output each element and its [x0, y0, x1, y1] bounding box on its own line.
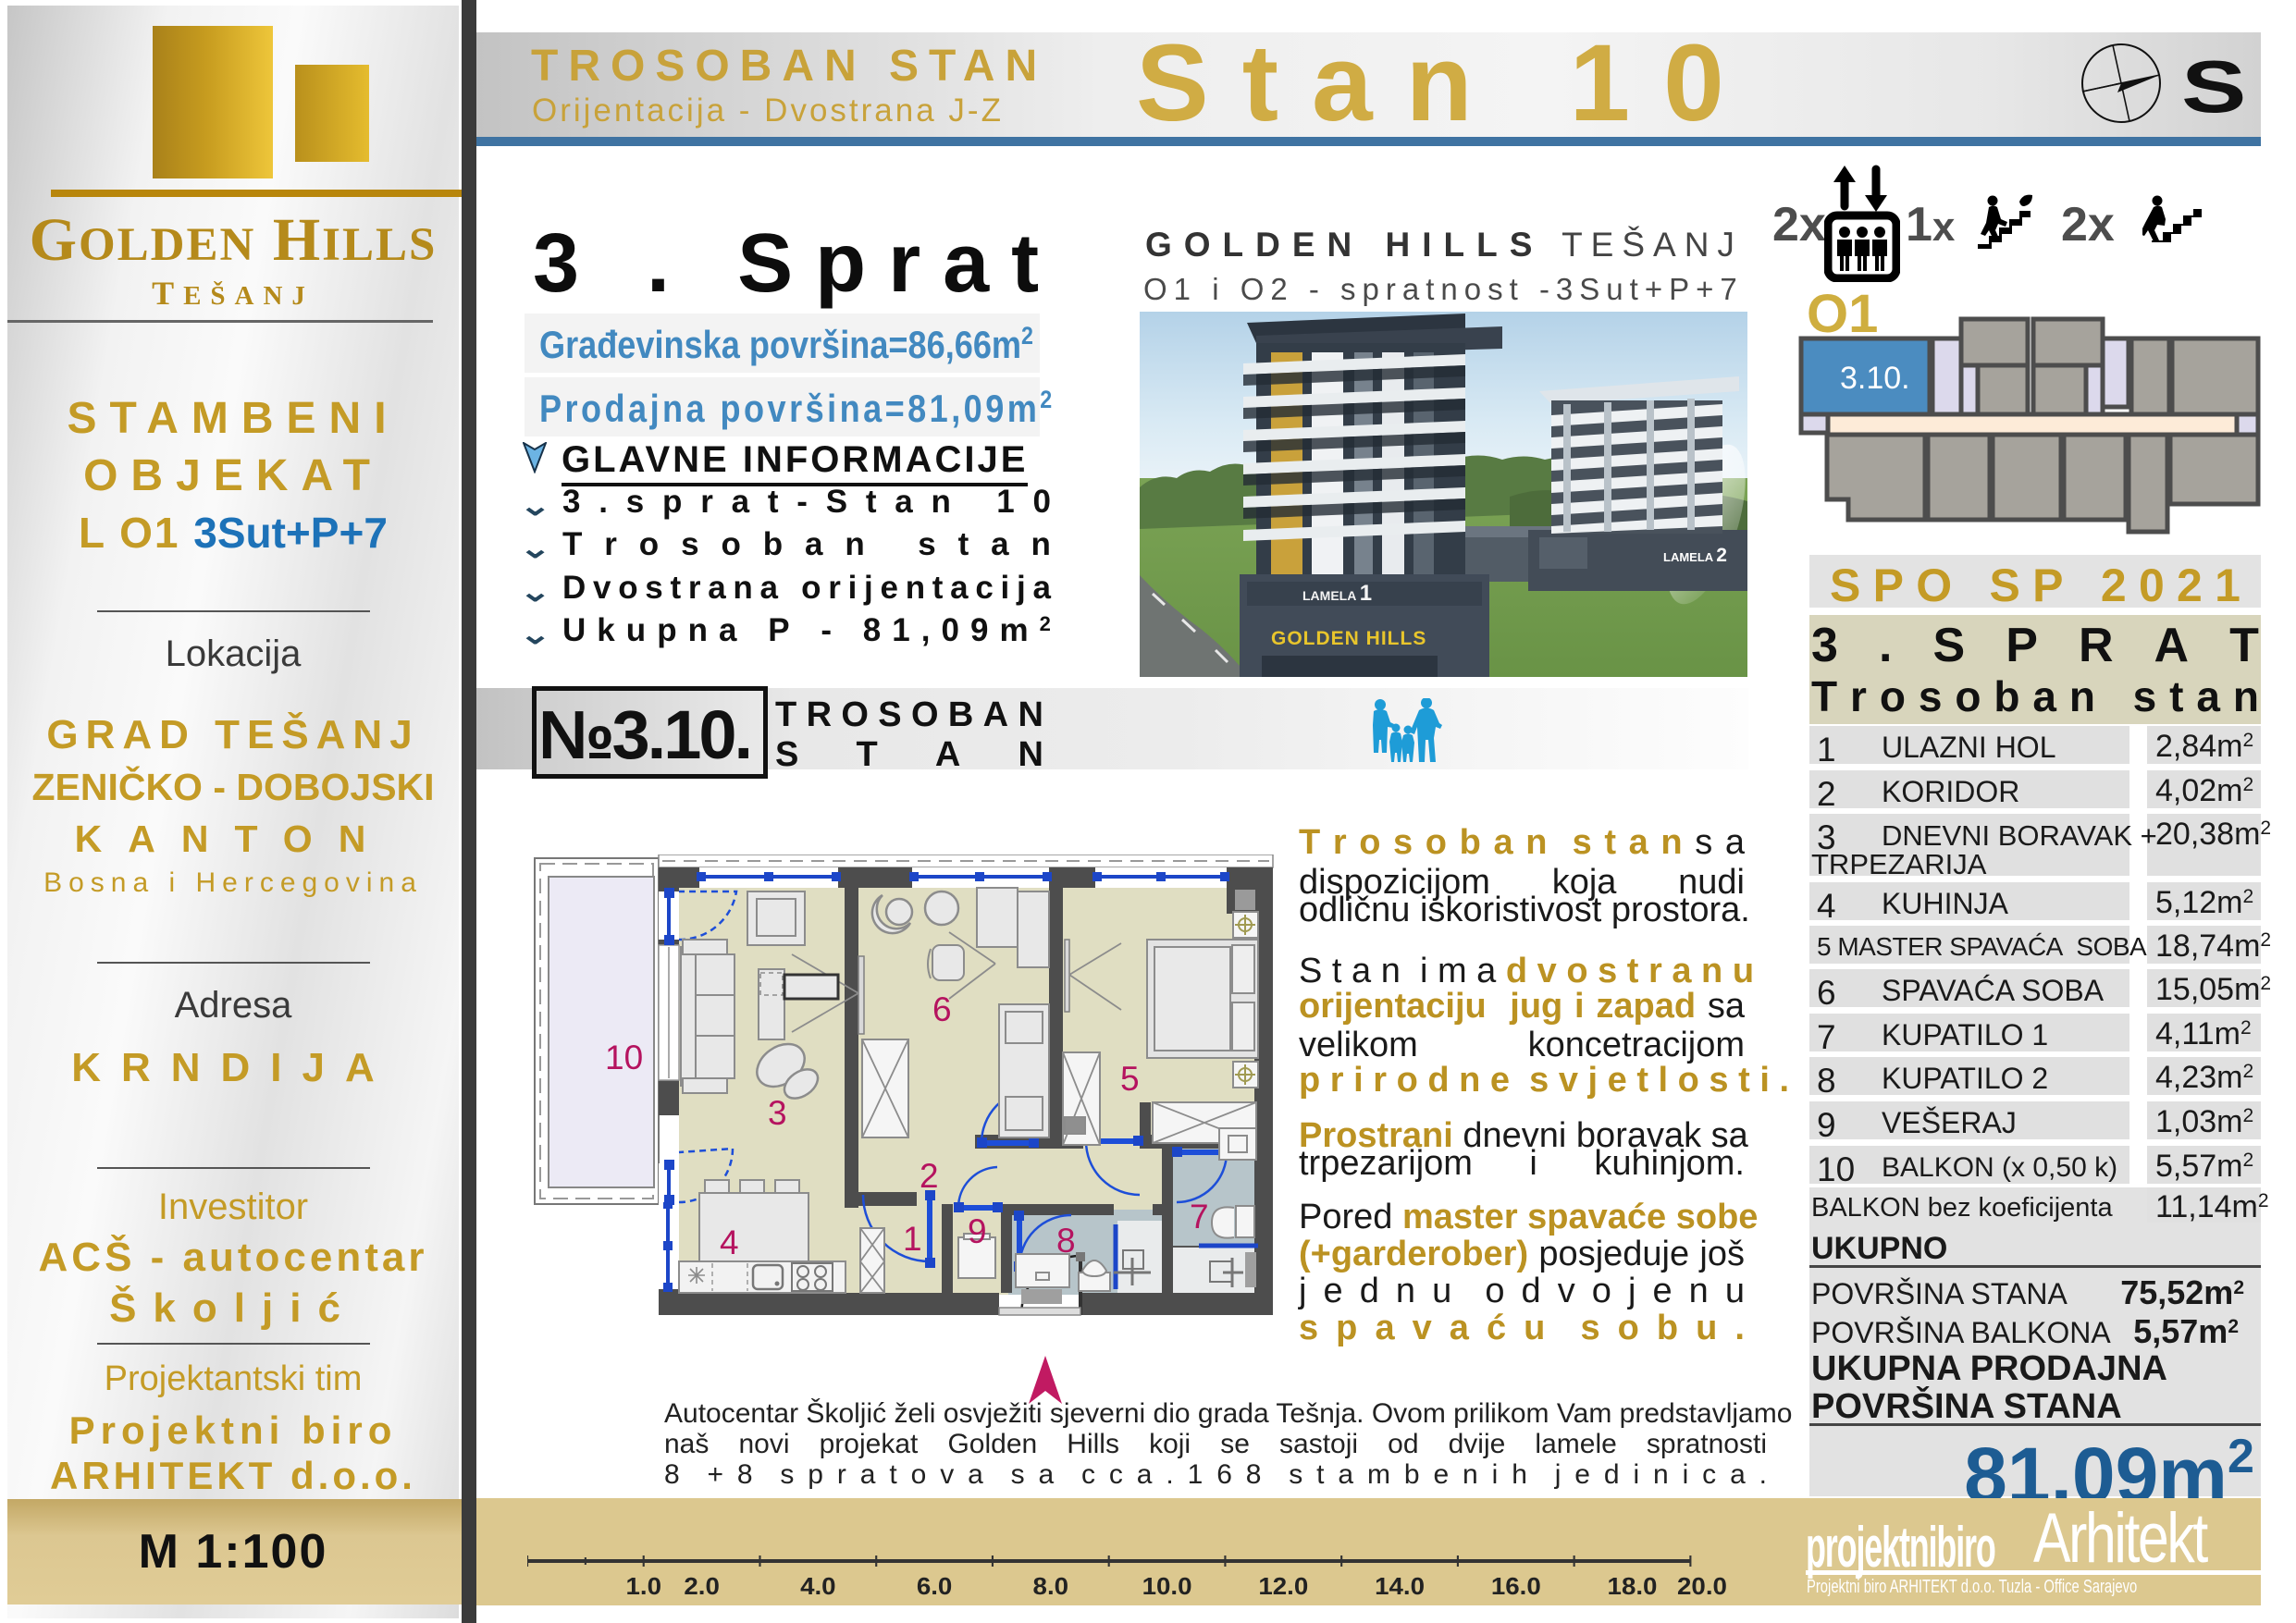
- svg-text:14.0: 14.0: [1375, 1573, 1425, 1600]
- svg-text:9: 9: [968, 1212, 987, 1250]
- svg-text:6: 6: [932, 990, 952, 1028]
- svg-text:2: 2: [920, 1157, 939, 1195]
- svg-text:7: 7: [1190, 1198, 1209, 1236]
- svg-text:10.0: 10.0: [1142, 1573, 1192, 1600]
- svg-text:GOLDEN HILLS: GOLDEN HILLS: [1271, 628, 1426, 649]
- svg-text:18.0: 18.0: [1608, 1573, 1658, 1600]
- svg-text:3.10.: 3.10.: [1840, 361, 1910, 396]
- svg-text:10: 10: [605, 1039, 643, 1076]
- svg-text:4: 4: [720, 1223, 739, 1261]
- svg-text:3: 3: [768, 1094, 787, 1132]
- svg-text:1.0: 1.0: [625, 1573, 661, 1600]
- svg-text:8: 8: [1056, 1222, 1076, 1260]
- svg-text:6.0: 6.0: [917, 1573, 953, 1600]
- svg-text:12.0: 12.0: [1258, 1573, 1308, 1600]
- svg-text:20.0 m: 20.0 m: [1677, 1573, 1730, 1600]
- svg-text:4.0: 4.0: [800, 1573, 836, 1600]
- svg-text:8.0: 8.0: [1033, 1573, 1069, 1600]
- svg-text:1: 1: [903, 1220, 922, 1258]
- svg-text:16.0: 16.0: [1491, 1573, 1541, 1600]
- svg-text:5: 5: [1120, 1060, 1140, 1098]
- svg-text:2.0: 2.0: [684, 1573, 720, 1600]
